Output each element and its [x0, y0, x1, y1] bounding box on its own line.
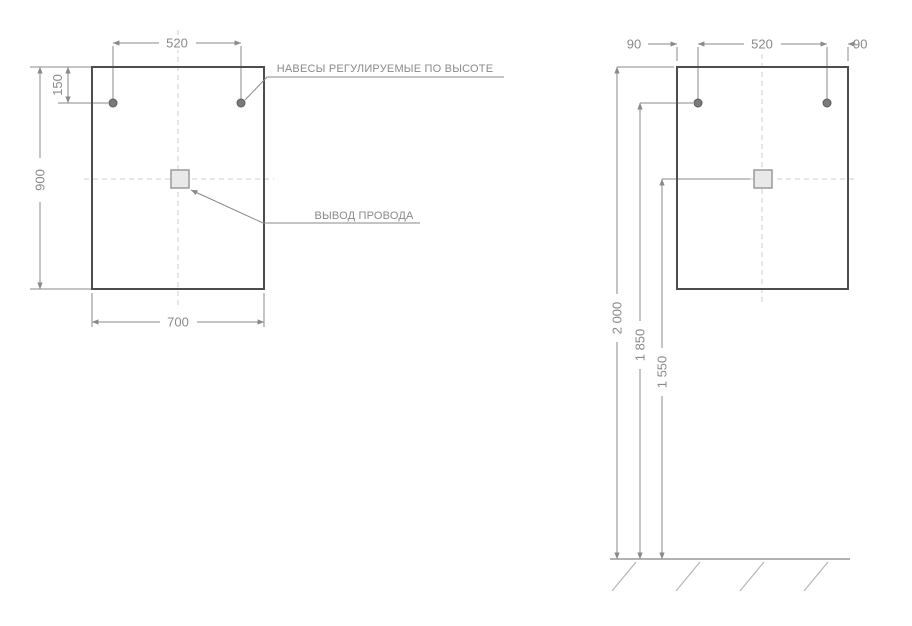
mirror-installation-drawing: 520 150 900 700 НАВЕСЫ РЕГУЛИРУЕМЫЕ ПО В… — [0, 0, 912, 626]
leader-line-hangers — [245, 77, 504, 100]
dim-height: 900 — [33, 169, 48, 191]
label-wire-outlet: ВЫВОД ПРОВОДА — [314, 210, 414, 222]
front-view: 520 150 900 700 НАВЕСЫ РЕГУЛИРУЕМЫЕ ПО В… — [30, 30, 504, 330]
floor-hatch-mark — [612, 562, 636, 591]
dim-edge-right: 90 — [853, 37, 867, 52]
hanger-dot-left — [109, 99, 117, 107]
hanger-dot-right — [823, 99, 831, 107]
wire-outlet-square — [754, 170, 772, 188]
dim-height-wire-outlet: 1 550 — [655, 356, 670, 389]
hanger-dot-right — [237, 99, 245, 107]
dim-height-hangers: 1 850 — [633, 329, 648, 362]
dim-hanger-top-offset: 150 — [50, 74, 65, 96]
floor-hatch-mark — [804, 562, 828, 591]
floor-hatch-mark — [676, 562, 700, 591]
installation-view: 90 520 90 2 000 1 850 1 550 — [610, 36, 868, 591]
floor-hatch-mark — [740, 562, 764, 591]
dim-hanger-spacing: 520 — [166, 36, 188, 51]
label-hangers: НАВЕСЫ РЕГУЛИРУЕМЫЕ ПО ВЫСОТЕ — [277, 63, 494, 75]
dim-edge-left: 90 — [627, 37, 641, 52]
dim-height-mirror-top: 2 000 — [610, 302, 625, 335]
wire-outlet-square — [171, 170, 189, 188]
drawing-canvas: 520 150 900 700 НАВЕСЫ РЕГУЛИРУЕМЫЕ ПО В… — [0, 0, 912, 626]
dim-width: 700 — [167, 315, 189, 330]
dim-hanger-spacing: 520 — [751, 37, 773, 52]
hanger-dot-left — [694, 99, 702, 107]
